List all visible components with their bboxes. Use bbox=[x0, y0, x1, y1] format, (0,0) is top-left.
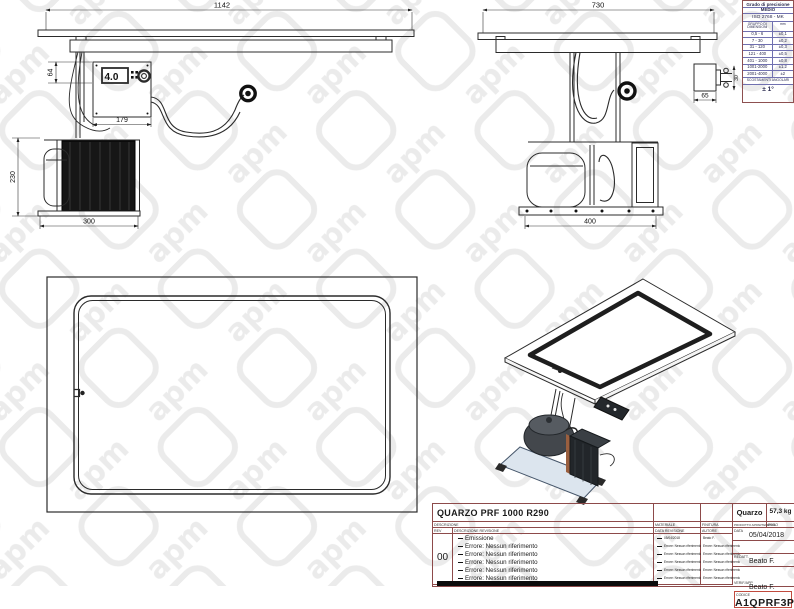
revision-dates: 05/04/2018 Errore: Nessun riferimento Er… bbox=[654, 534, 701, 585]
precision-range: 121 - 400 bbox=[743, 51, 773, 57]
rev-number: 00 bbox=[433, 534, 452, 563]
cad-drawing-canvas: apm 4.0 bbox=[0, 0, 794, 586]
revision-date: 05/04/2018 bbox=[664, 536, 680, 540]
precision-range: 7 - 30 bbox=[743, 38, 773, 44]
precision-tol: ±2 bbox=[773, 71, 793, 77]
rev-number-cell: 00 bbox=[433, 534, 453, 585]
precision-col-unit: mm bbox=[773, 22, 793, 30]
data-revisione-label: DATA REVISIONE bbox=[655, 529, 684, 533]
revision-date: Errore: Nessun riferimento bbox=[664, 568, 701, 572]
iso-condenser-copper-edge bbox=[566, 434, 570, 474]
revision-author: Beato F. bbox=[703, 536, 715, 540]
condenser-coil bbox=[62, 141, 135, 211]
revision-date: Errore: Nessun riferimento bbox=[664, 544, 701, 548]
precision-range: 401 - 1000 bbox=[743, 58, 773, 64]
dim-64: 64 bbox=[48, 69, 55, 77]
precision-grade-table: Grado di precisione MEDIO ISO 2768 - MK … bbox=[742, 0, 794, 103]
revision-desc: Emissione bbox=[465, 535, 494, 542]
precision-tol: ±0,2 bbox=[773, 38, 793, 44]
finitura-label: FINITURA bbox=[702, 523, 719, 527]
drawing-sheet: { "watermark": {"text": "apm", "color": … bbox=[0, 0, 794, 586]
precision-tol: ±0,5 bbox=[773, 51, 793, 57]
rev-label: REV bbox=[434, 529, 441, 533]
approval-block: DATA 05/04/2018 REDATT. Beato F. VERIF/A… bbox=[733, 528, 794, 585]
precision-tol: ±0,3 bbox=[773, 45, 793, 51]
precision-range: 31 - 120 bbox=[743, 45, 773, 51]
dim-300: 300 bbox=[83, 219, 95, 226]
weight-value: 57,3 kg bbox=[767, 504, 794, 522]
data-label: DATA bbox=[734, 529, 743, 533]
revision-desc: Errore: Nessun riferimento bbox=[465, 559, 538, 566]
precision-tol: ±0,8 bbox=[773, 58, 793, 64]
dim-1142: 1142 bbox=[214, 1, 230, 10]
precision-angular-label: SCOSTAMENTI ANGOLARI bbox=[743, 78, 793, 85]
apm-watermark bbox=[0, 0, 794, 586]
precision-range: 1001-2000 bbox=[743, 65, 773, 71]
revision-date: Errore: Nessun riferimento bbox=[664, 576, 701, 580]
codice-label: CODICE bbox=[736, 593, 750, 597]
dim-230: 230 bbox=[10, 171, 17, 183]
precision-col-dim: GRUPPO DI DIMENSIONI bbox=[743, 22, 773, 30]
peso-label: PESO bbox=[768, 523, 778, 527]
plan-probe-dot bbox=[80, 391, 84, 395]
rev-desc-label: DESCRIZIONE REVISIONE bbox=[454, 529, 499, 533]
product-family: Quarzo bbox=[733, 504, 767, 522]
approver-name: Beato F. bbox=[733, 554, 794, 591]
autore-label: AUTORE bbox=[702, 529, 717, 533]
title-block: QUARZO PRF 1000 R290 Quarzo 57,3 kg DESC… bbox=[432, 503, 794, 587]
materiale-label: MATERIALE bbox=[655, 523, 675, 527]
dim-65: 65 bbox=[701, 93, 709, 100]
precision-tol: ±0,1 bbox=[773, 32, 793, 38]
dim-400: 400 bbox=[584, 219, 596, 226]
sheet-edge-bar bbox=[437, 581, 658, 586]
dim-730: 730 bbox=[592, 1, 605, 10]
description-label: DESCRIZIONE bbox=[434, 523, 459, 527]
revision-desc: Errore: Nessun riferimento bbox=[465, 543, 538, 550]
precision-standard: ISO 2768 - MK bbox=[743, 14, 793, 22]
precision-title: Grado di precisione bbox=[743, 1, 793, 8]
revision-date: Errore: Nessun riferimento bbox=[664, 560, 701, 564]
thermostat-display-value: 4.0 bbox=[105, 72, 119, 83]
revision-descriptions: Emissione Errore: Nessun riferimento Err… bbox=[453, 534, 654, 585]
precision-angular-value: ± 1° bbox=[743, 85, 793, 94]
revision-desc: Errore: Nessun riferimento bbox=[465, 551, 538, 558]
drawing-description: QUARZO PRF 1000 R290 bbox=[433, 504, 653, 518]
revision-desc: Errore: Nessun riferimento bbox=[465, 567, 538, 574]
revision-date: Errore: Nessun riferimento bbox=[664, 552, 701, 556]
precision-range: 0,5 - 6 bbox=[743, 32, 773, 38]
verif-label: VERIF/APP bbox=[734, 581, 753, 585]
materiale-cell bbox=[654, 504, 701, 522]
precision-range: 2001-4000 bbox=[743, 71, 773, 77]
revision-authors: Beato F. Errore: Nessun riferimento Erro… bbox=[701, 534, 733, 585]
dim-179: 179 bbox=[116, 117, 128, 124]
dim-connector-dia: 30 bbox=[734, 75, 740, 81]
precision-tol: ±1,2 bbox=[773, 65, 793, 71]
finitura-cell bbox=[701, 504, 733, 522]
code-box: CODICE A1QPRF3P bbox=[734, 591, 792, 608]
